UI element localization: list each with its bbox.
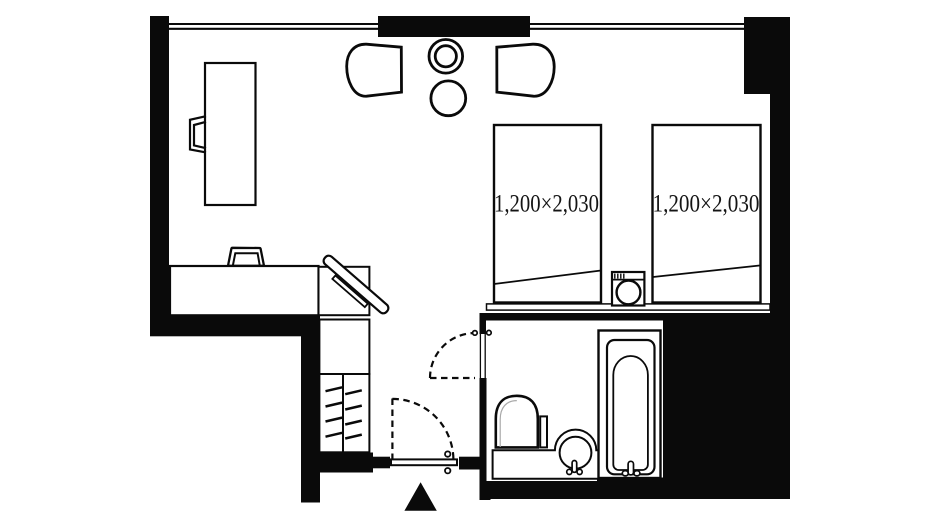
svg-text:1,200×2,030: 1,200×2,030 — [653, 191, 760, 218]
svg-text:1,200×2,030: 1,200×2,030 — [494, 191, 599, 218]
